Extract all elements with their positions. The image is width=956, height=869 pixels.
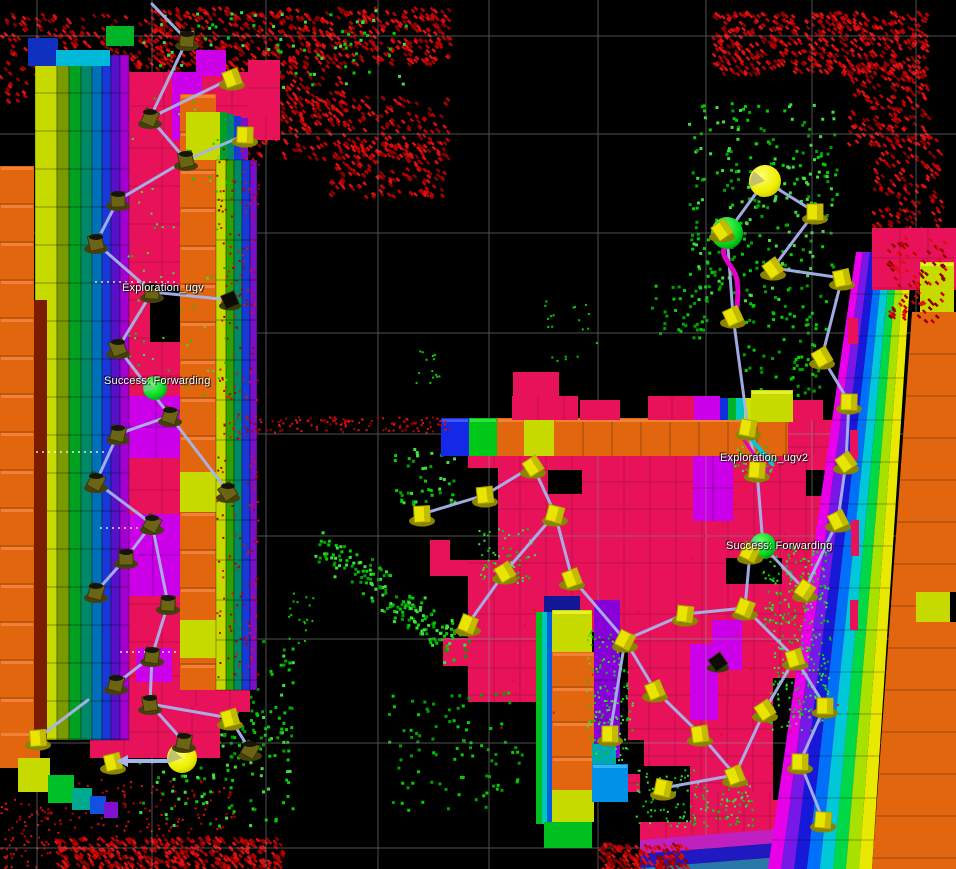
status-label-success-right: Success: Forwarding [726, 540, 833, 552]
red-cloud-bottomleft-3 [1, 799, 52, 869]
green-cloud-center [394, 448, 457, 506]
red-dotted-strip [229, 416, 449, 433]
green-cloud-right-mid2 [651, 285, 711, 340]
uav-sphere-yellow-top [749, 165, 781, 197]
green-cloud-bottomcenter [388, 692, 524, 812]
status-label-success-left: Success: Forwarding [104, 375, 211, 387]
rviz-3d-viewport[interactable]: Exploration_ugv Success: Forwarding Expl… [0, 0, 956, 869]
red-cloud-bottomleft-2 [54, 836, 286, 869]
scene-canvas [0, 0, 956, 869]
green-dots-midleft [288, 593, 314, 645]
status-label-exploration-left: Exploration_ugv [122, 282, 204, 294]
green-dots-mid [416, 350, 441, 384]
status-label-exploration-right: Exploration_ugv2 [720, 452, 808, 464]
green-cloud-right-mid [743, 300, 829, 398]
green-dots-abovebeam [544, 301, 598, 362]
